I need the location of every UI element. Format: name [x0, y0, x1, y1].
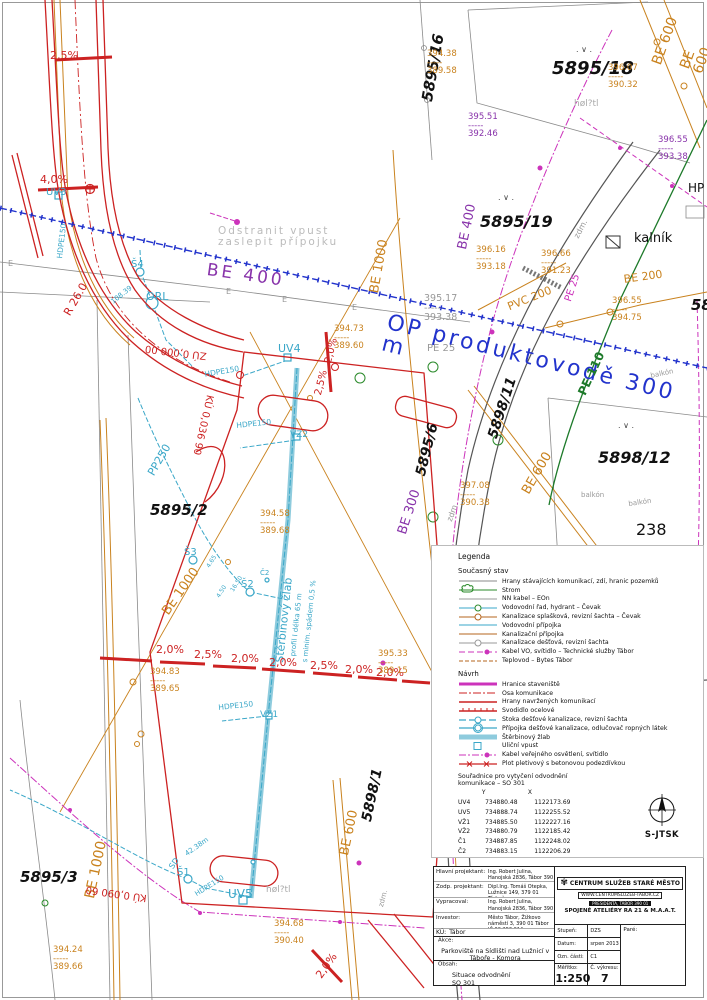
col-header-y: Y	[482, 789, 526, 796]
legend-proposal-list: Hranice staveniště Osa komunikace	[458, 680, 703, 768]
legend-item-label: Hranice staveniště	[502, 681, 560, 688]
point-id: Č2	[458, 849, 480, 855]
title-block-row: Hlavní projektant: Ing. Robert Julina, H…	[434, 867, 554, 882]
legend-item-label: Plot pletivový s betonovou podezdívkou	[502, 760, 625, 767]
legend-current-list: Hrany stávajících komunikací, zdí, hrani…	[458, 577, 703, 665]
cadastre-value: Tábor	[449, 929, 465, 936]
legend-item-label: Svodidlo ocelové	[502, 707, 554, 714]
content-row: Obsah: Situace odvodnění SO 301	[434, 961, 554, 988]
drawing-sheet: 2,5% 4,0% UV3 HDPE150 5895/16 394.38 ---…	[0, 0, 707, 1000]
legend-item: Plot pletivový s betonovou podezdívkou	[458, 759, 703, 768]
row-value: Ing. Robert Julina, Hanojská 2836, Tábor…	[488, 867, 554, 881]
title-block-row: Zodp. projektant: Dipl.Ing. Tomáš Otepka…	[434, 882, 554, 897]
legend-proposal-heading: Návrh	[458, 670, 703, 678]
company-address: PRESIDENTA, TÁBOR 390 01	[589, 901, 651, 906]
point-x: 1122173.69	[534, 800, 584, 806]
date-label: Datum:	[555, 938, 588, 951]
legend-item-label: Přípojka dešťové kanalizace, odlučovač r…	[502, 725, 667, 732]
copy-number-cell: Paré:	[621, 925, 685, 985]
legend-item-label: Kanalizace splašková, revizní šachta – Č…	[502, 613, 641, 620]
legend-item-label: Teplovod – Bytes Tábor	[502, 657, 573, 664]
scale-cell: Měřítko: 1:250	[555, 964, 588, 985]
title-block-row: Investor: Město Tábor, Žižkovo náměstí 3…	[434, 913, 554, 928]
date-value: srpen 2013	[588, 938, 621, 951]
legend-item-label: Stoka dešťové kanalizace, revizní šachta	[502, 716, 628, 723]
drawing-fields: Stupeň: DZS Datum: srpen 2013 Ozn. části…	[555, 925, 685, 985]
point-id: UV5	[458, 810, 480, 816]
row-label: Investor:	[434, 913, 488, 927]
legend-symbol-icon	[458, 655, 498, 667]
new-roads-red	[12, 0, 459, 988]
legend-item-label: Kabel VO, svítidlo – Technické služby Tá…	[502, 648, 634, 655]
coordinate-row: ORL 734902.35 1122186.01	[458, 855, 703, 858]
scale-value: 1:250	[555, 972, 587, 985]
point-y: 734888.74	[485, 810, 529, 816]
legend-item-label: Kanalizační přípojka	[502, 631, 564, 638]
part-value: C1	[588, 951, 621, 964]
legend-item-label: NN kabel – EOn	[502, 595, 550, 602]
point-x: 1122255.52	[534, 810, 584, 816]
project-people: Hlavní projektant: Ing. Robert Julina, H…	[434, 867, 554, 929]
point-y: 734883.15	[485, 849, 529, 855]
point-x: 1122206.29	[534, 849, 584, 855]
company-logo-icon: ✾	[560, 879, 568, 888]
title-block: Hlavní projektant: Ing. Robert Julina, H…	[433, 866, 686, 986]
row-value: Ing. Robert Julina, Hanojská 2836, Tábor…	[488, 898, 554, 912]
col-header-x: X	[528, 789, 578, 796]
legend-item-label: Hrany stávajících komunikací, zdí, hrani…	[502, 578, 659, 585]
row-value: Dipl.Ing. Tomáš Otepka, Lužnice 149, 379…	[488, 882, 554, 896]
stage-label: Stupeň:	[555, 925, 588, 938]
studio-name: SPOJENÉ ATELIÉRY RA 21 & M.A.A.T.	[565, 908, 676, 914]
title-block-right: ✾ CENTRUM SLUŽEB STARÉ MĚSTO WWW.CENTRUM…	[555, 867, 685, 985]
legend-title: Legenda	[458, 552, 703, 561]
point-id: UV4	[458, 800, 480, 806]
legend-item-label: Osa komunikace	[502, 690, 553, 697]
legend-symbol-icon	[458, 758, 498, 770]
company-stamp: ✾ CENTRUM SLUŽEB STARÉ MĚSTO WWW.CENTRUM…	[555, 867, 685, 925]
stage-value: DZS	[588, 925, 621, 938]
row-label: Hlavní projektant:	[434, 867, 488, 881]
row-label: Zodp. projektant:	[434, 882, 488, 896]
sheet-number-cell: Č. výkresu: 7	[588, 964, 621, 985]
legend-item-label: Vodovodní přípojka	[502, 622, 561, 629]
company-web: WWW.CENTRUMSLUZEB-TABOR.CZ	[578, 892, 662, 899]
legend-item: Teplovod – Bytes Tábor	[458, 656, 703, 665]
legend-current-heading: Současný stav	[458, 567, 703, 575]
coordinate-table-title: Souřadnice pro vytyčení odvodnění	[458, 773, 703, 780]
part-label: Ozn. části:	[555, 951, 588, 964]
coordinate-row: Č2 734883.15 1122206.29	[458, 845, 703, 855]
company-name: CENTRUM SLUŽEB STARÉ MĚSTO	[570, 880, 680, 887]
row-label: Vypracoval:	[434, 898, 488, 912]
legend-item-label: Strom	[502, 587, 521, 594]
row-value: Město Tábor, Žižkovo náměstí 3, 390 01 T…	[488, 913, 554, 927]
sheet-number-value: 7	[588, 972, 621, 985]
compass-icon	[642, 792, 682, 830]
legend-item-label: Kabel veřejného osvětlení, svítidlo	[502, 751, 608, 758]
title-block-row: Vypracoval: Ing. Robert Julina, Hanojská…	[434, 898, 554, 913]
coordinate-table-subtitle: komunikace – SO 301	[458, 780, 703, 787]
legend-item-label: Hrany navržených komunikací	[502, 698, 596, 705]
legend-item-label: Štěrbinový žlab	[502, 734, 550, 741]
coordinate-system-label: S-JTSK	[642, 830, 682, 840]
legend-item-label: Kanalizace dešťová, revizní šachta	[502, 639, 609, 646]
title-block-left: Hlavní projektant: Ing. Robert Julina, H…	[434, 867, 555, 985]
drawing-content: Situace odvodnění SO 301	[452, 972, 554, 988]
project-name-row: Akce: Parkoviště na Sídlišti nad Lužnicí…	[434, 937, 554, 961]
north-arrow: S-JTSK	[642, 792, 682, 840]
legend-item-label: Vodovodní řad, hydrant – Čevak	[502, 604, 601, 611]
point-y: 734880.48	[485, 800, 529, 806]
legend-item-label: Uliční vpust	[502, 742, 538, 749]
